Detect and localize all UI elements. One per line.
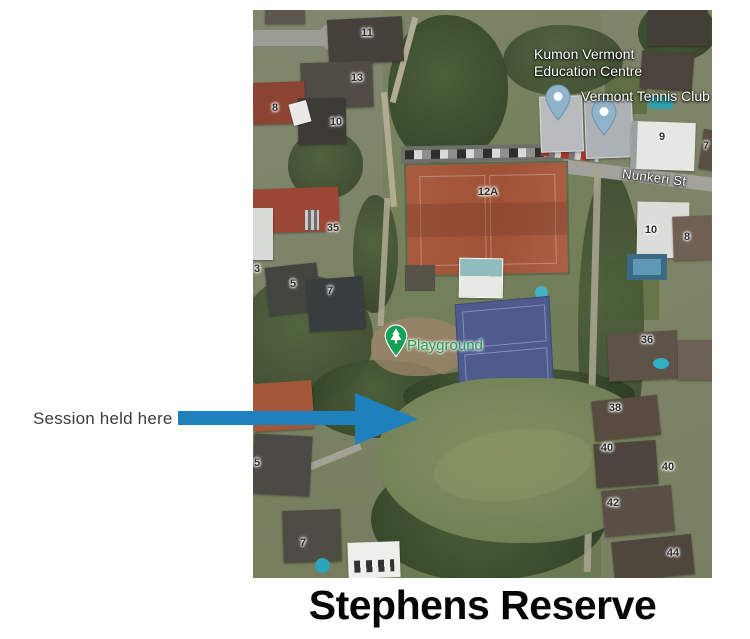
pin-body <box>546 85 570 120</box>
page-title: Stephens Reserve <box>253 580 712 630</box>
house-number: 35 <box>327 222 339 234</box>
kumon-pin[interactable] <box>545 84 571 122</box>
house-number: 9 <box>659 131 665 143</box>
annotation-arrow <box>178 391 420 447</box>
house-number: 8 <box>272 102 278 114</box>
pin-dot <box>600 107 609 116</box>
house-number: 40 <box>662 461 674 473</box>
tennis-club-label[interactable]: Vermont Tennis Club <box>581 88 710 104</box>
house-number: 10 <box>330 116 342 128</box>
kumon-label[interactable]: Kumon Vermont Education Centre <box>534 46 642 80</box>
house-number: 13 <box>351 72 363 84</box>
session-label: Session held here <box>33 409 173 429</box>
kumon-label-line2: Education Centre <box>534 63 642 80</box>
house-number: 7 <box>327 285 333 297</box>
house-number: 36 <box>641 334 653 346</box>
house-number: 7 <box>703 140 709 152</box>
tennis-club-pin[interactable] <box>591 99 617 137</box>
house-number: 5 <box>290 278 296 290</box>
house-number: 44 <box>667 547 679 559</box>
house-number: 38 <box>609 402 621 414</box>
page: Session held here <box>0 0 750 639</box>
satellite-map[interactable]: Kumon Vermont Education Centre Vermont T… <box>253 10 712 578</box>
playground-pin[interactable] <box>384 324 408 358</box>
house-number: 3 <box>254 263 260 275</box>
house-number: 12A <box>478 186 498 198</box>
kumon-label-line1: Kumon Vermont <box>534 46 642 63</box>
house-number: 7 <box>300 537 306 549</box>
house-number: 42 <box>607 497 619 509</box>
arrow-shape <box>178 393 418 445</box>
pin-dot <box>554 92 563 101</box>
pin-body <box>592 100 616 135</box>
playground-label[interactable]: Playground <box>407 337 483 354</box>
house-number: 10 <box>645 224 657 236</box>
house-number: 8 <box>684 231 690 243</box>
house-number: 5 <box>254 457 260 469</box>
house-number: 11 <box>361 27 373 39</box>
house-number: 40 <box>601 442 613 454</box>
